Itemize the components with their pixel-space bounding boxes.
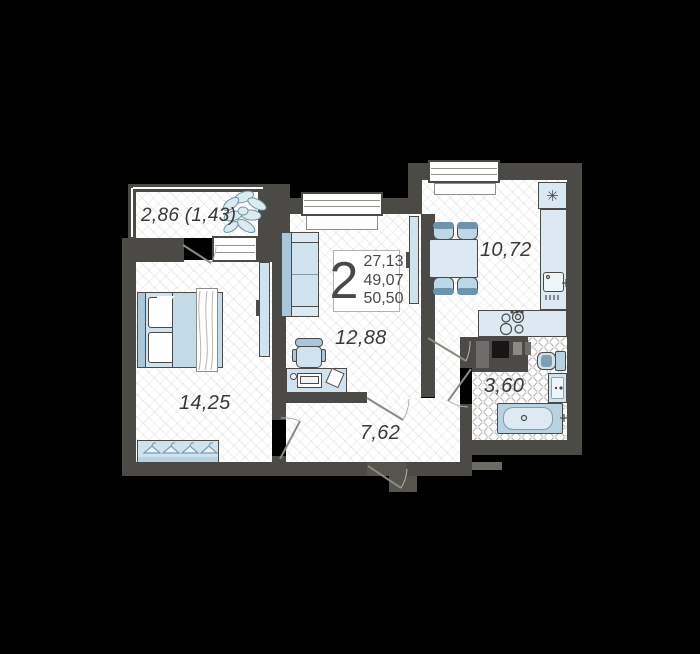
balcony-glazing-line-top [133,187,263,189]
office-chair-armrest-left [292,349,297,362]
bed-pillow-2 [148,332,175,363]
kitchen-window-sill [434,183,496,195]
office-chair-seat [296,346,322,368]
entry-step [389,476,417,492]
bedroom-balcony-window [212,236,258,262]
bathroom-left-wall-top [460,337,472,368]
bathroom-bottom-wall [460,440,582,455]
blanket-fold [157,296,175,314]
sofa-back [281,232,292,317]
unit-area-living: 27,13 [363,253,403,272]
wardrobe-shelf [138,457,218,462]
office-chair-back [295,338,323,347]
bedroom-left-wall [122,238,136,476]
unit-area-total: 50,50 [363,290,403,309]
fridge-snowflake-icon: ✳ [538,182,567,209]
kitchen-window [428,160,500,183]
kitchen-counter-bottom [478,310,567,337]
desk-mug [290,373,297,380]
living-bottom-wall [272,392,367,403]
balcony-area-label: 2,86 (1,43) [141,206,236,225]
office-chair-armrest-right [321,349,326,362]
toilet-tank [555,351,566,371]
living-tv-bracket [406,252,409,268]
unit-area-no-balcony: 49,07 [363,272,403,291]
kitchen-sink [543,272,564,292]
toilet-bowl-inner [541,355,552,367]
bedroom-area-label: 14,25 [179,393,231,413]
bed-headboard [137,292,146,368]
living-top-wall-left [266,198,303,214]
right-outer-wall [567,163,582,447]
unit-stats-box: 2 27,13 49,07 50,50 [333,250,400,312]
living-window [301,192,383,216]
dining-chair-bottom-right-back [457,288,478,295]
washer-door-icon [492,341,509,358]
washer-knob2-icon [525,342,531,355]
desk-laptop-screen [300,376,319,384]
bed-runner [196,288,218,372]
balcony-glazing-line-left [131,188,133,237]
hallway-area-label: 7,62 [360,423,400,443]
bath-sink-basin [551,377,564,399]
kitchen-counter-right [540,209,567,310]
kitchen-top-wall-left [408,163,430,180]
living-area-label: 12,88 [335,328,387,348]
living-tv-unit [409,216,419,304]
sofa-cushion-divider [292,274,318,275]
outer-wall-accent [472,462,502,470]
dining-chair-top-right-back [457,222,478,229]
unit-areas: 27,13 49,07 50,50 [363,253,403,309]
entry-threshold [367,462,407,476]
kitchen-area-label: 10,72 [480,240,532,260]
bathroom-area-label: 3,60 [484,376,524,396]
dining-chair-top-left-back [433,222,454,229]
washer-knob-icon [513,342,522,355]
living-window-sill [306,214,378,230]
washer-panel-icon [476,341,489,368]
hallway-passage-floor [435,337,460,402]
unit-rooms-count: 2 [330,258,359,305]
bedroom-tv-unit [259,262,270,357]
floor-plan: 2 27,13 49,07 50,50 ✳ 2,86 (1,43) 14,25 … [0,0,700,654]
bathtub-basin [503,407,553,430]
bedroom-tv-bracket [256,300,259,316]
bottom-wall-left [122,462,367,476]
dining-chair-bottom-left-back [433,288,454,295]
dining-table [429,239,478,278]
